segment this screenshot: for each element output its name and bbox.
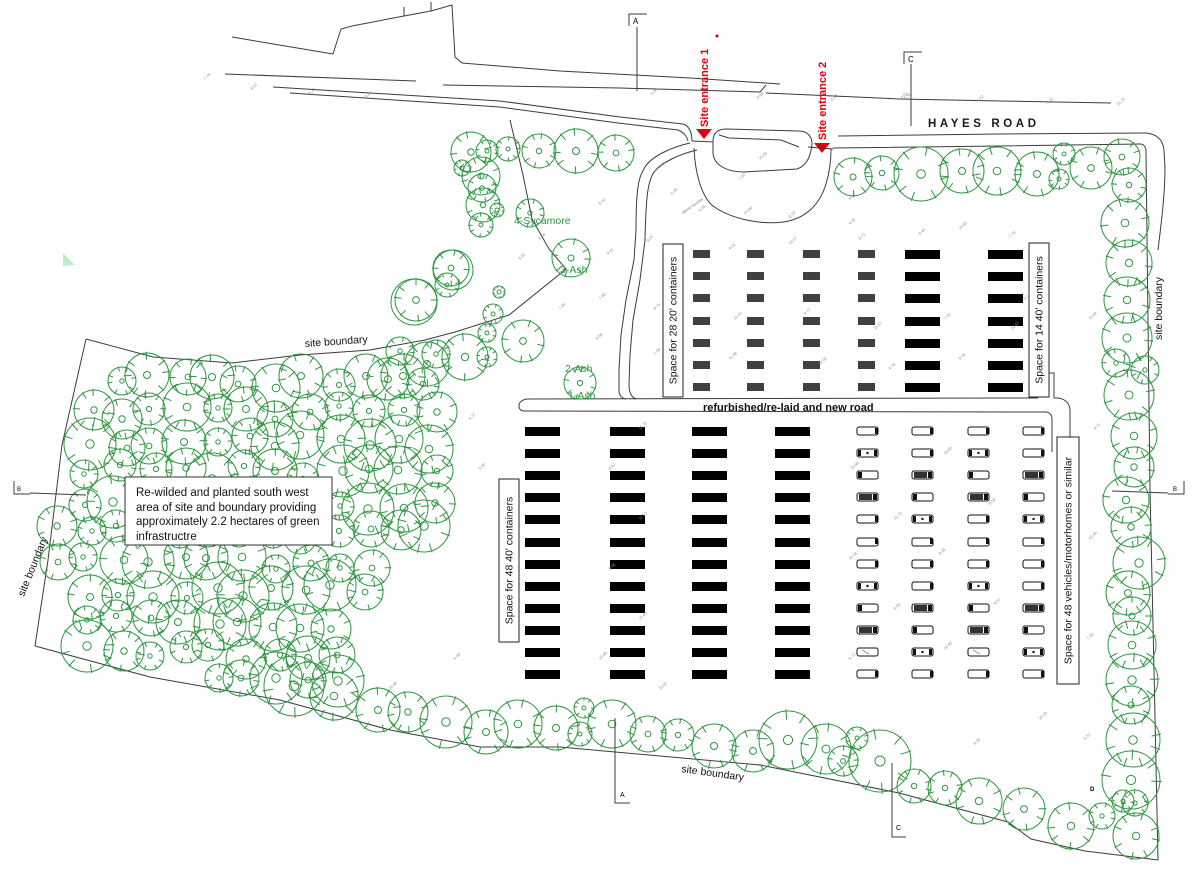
svg-text:Space for 14 40' containers: Space for 14 40' containers [1034, 256, 1046, 384]
svg-text:7.78: 7.78 [1007, 229, 1017, 238]
svg-text:5.21: 5.21 [1082, 731, 1092, 740]
svg-text:5.30: 5.30 [477, 461, 487, 470]
svg-text:3-Ash: 3-Ash [560, 264, 588, 276]
svg-text:11.24: 11.24 [847, 550, 858, 561]
svg-text:8.67: 8.67 [607, 461, 617, 470]
svg-text:A: A [633, 17, 639, 26]
svg-text:4.52: 4.52 [975, 93, 985, 102]
svg-text:8.06: 8.06 [594, 331, 604, 340]
svg-text:10.65: 10.65 [942, 445, 953, 456]
svg-text:Space for 48 vehicles/motorhom: Space for 48 vehicles/motorhomes or simi… [1063, 456, 1075, 664]
svg-text:8.73: 8.73 [857, 231, 867, 240]
svg-text:11.03: 11.03 [732, 310, 743, 321]
svg-text:C: C [908, 55, 914, 64]
svg-text:9.08: 9.08 [697, 203, 707, 212]
svg-text:10.83: 10.83 [942, 640, 953, 651]
svg-text:4.25: 4.25 [847, 216, 857, 225]
svg-text:9.11: 9.11 [657, 159, 666, 168]
svg-text:7.16: 7.16 [942, 311, 952, 320]
svg-text:8.83: 8.83 [829, 92, 839, 101]
svg-text:Site entrance 1: Site entrance 1 [699, 49, 711, 127]
svg-text:Space for 28 20' containers: Space for 28 20' containers [668, 257, 680, 385]
svg-text:site boundary: site boundary [16, 534, 51, 598]
svg-text:9.93: 9.93 [847, 191, 857, 200]
svg-text:1-Ash: 1-Ash [568, 390, 596, 402]
svg-text:11.92: 11.92 [1087, 310, 1098, 321]
svg-text:7.49: 7.49 [597, 291, 607, 300]
svg-text:10.92: 10.92 [957, 220, 968, 231]
svg-text:Site entrance 2: Site entrance 2 [817, 62, 829, 140]
svg-text:D: D [1090, 787, 1095, 793]
svg-text:5.69: 5.69 [452, 651, 462, 660]
svg-text:7.56: 7.56 [652, 346, 662, 355]
svg-text:A: A [620, 792, 625, 799]
svg-text:7.81: 7.81 [737, 171, 747, 180]
svg-text:8.68: 8.68 [537, 231, 547, 240]
svg-text:4.71: 4.71 [1092, 421, 1102, 430]
svg-text:10.85: 10.85 [597, 650, 608, 661]
svg-text:9.71: 9.71 [802, 306, 812, 315]
svg-text:Re-wilded and planted south we: Re-wilded and planted south west [136, 487, 309, 499]
svg-text:9.01: 9.01 [605, 246, 615, 255]
svg-text:8.19: 8.19 [787, 209, 797, 218]
svg-text:9.75: 9.75 [652, 301, 662, 310]
svg-text:infrastructre: infrastructre [136, 531, 197, 543]
svg-text:5.20: 5.20 [669, 186, 679, 195]
svg-text:9.37: 9.37 [467, 411, 477, 420]
svg-text:2-Ash: 2-Ash [565, 363, 593, 375]
svg-text:4.51: 4.51 [727, 241, 737, 250]
svg-text:8.55: 8.55 [892, 601, 902, 610]
svg-text:site boundary: site boundary [304, 334, 368, 350]
svg-text:10.69: 10.69 [757, 150, 768, 161]
svg-text:10.98: 10.98 [387, 680, 398, 691]
svg-text:10.15: 10.15 [1037, 710, 1048, 721]
svg-text:5.09: 5.09 [957, 351, 967, 360]
svg-text:HAYES ROAD: HAYES ROAD [928, 118, 1040, 130]
svg-text:4-Sycamore: 4-Sycamore [514, 215, 571, 227]
svg-text:6.28: 6.28 [937, 546, 947, 555]
svg-text:area of site and boundary prov: area of site and boundary providing [136, 502, 316, 514]
svg-text:4.78: 4.78 [887, 361, 897, 370]
svg-text:10.07: 10.07 [787, 235, 798, 246]
svg-text:Space for 48 40' containers: Space for 48 40' containers [504, 497, 516, 625]
svg-text:11.48: 11.48 [727, 350, 738, 361]
svg-text:10.94: 10.94 [742, 205, 753, 216]
svg-text:approximately 2.2 hectares of: approximately 2.2 hectares of green [136, 516, 319, 528]
svg-text:6.07: 6.07 [249, 81, 259, 90]
svg-text:11.93: 11.93 [657, 680, 668, 691]
svg-text:7.09: 7.09 [557, 301, 567, 310]
svg-text:C: C [896, 825, 901, 832]
svg-text:11.72: 11.72 [892, 510, 903, 521]
svg-text:site boundary: site boundary [1153, 276, 1165, 340]
svg-text:9.37: 9.37 [645, 233, 655, 242]
svg-text:6.41: 6.41 [917, 226, 927, 235]
svg-text:site boundary: site boundary [681, 763, 746, 784]
svg-text:refurbished/re-laid and new ro: refurbished/re-laid and new road [703, 402, 874, 414]
svg-text:4.11: 4.11 [1045, 95, 1054, 104]
svg-text:7.28: 7.28 [1085, 631, 1095, 640]
svg-text:6.35: 6.35 [972, 736, 982, 745]
svg-text:5.90: 5.90 [649, 86, 659, 95]
svg-text:6.81: 6.81 [517, 251, 527, 260]
svg-text:10.89: 10.89 [849, 460, 860, 471]
svg-text:9.71: 9.71 [847, 651, 857, 660]
svg-text:7.76: 7.76 [202, 71, 212, 80]
svg-text:10.40: 10.40 [1087, 530, 1098, 541]
svg-text:B: B [1173, 487, 1177, 493]
svg-text:11.03: 11.03 [817, 355, 828, 366]
svg-text:B: B [17, 487, 21, 493]
svg-text:10.70: 10.70 [1115, 96, 1126, 107]
svg-text:4.51: 4.51 [992, 596, 1002, 605]
svg-text:6.41: 6.41 [597, 196, 607, 205]
